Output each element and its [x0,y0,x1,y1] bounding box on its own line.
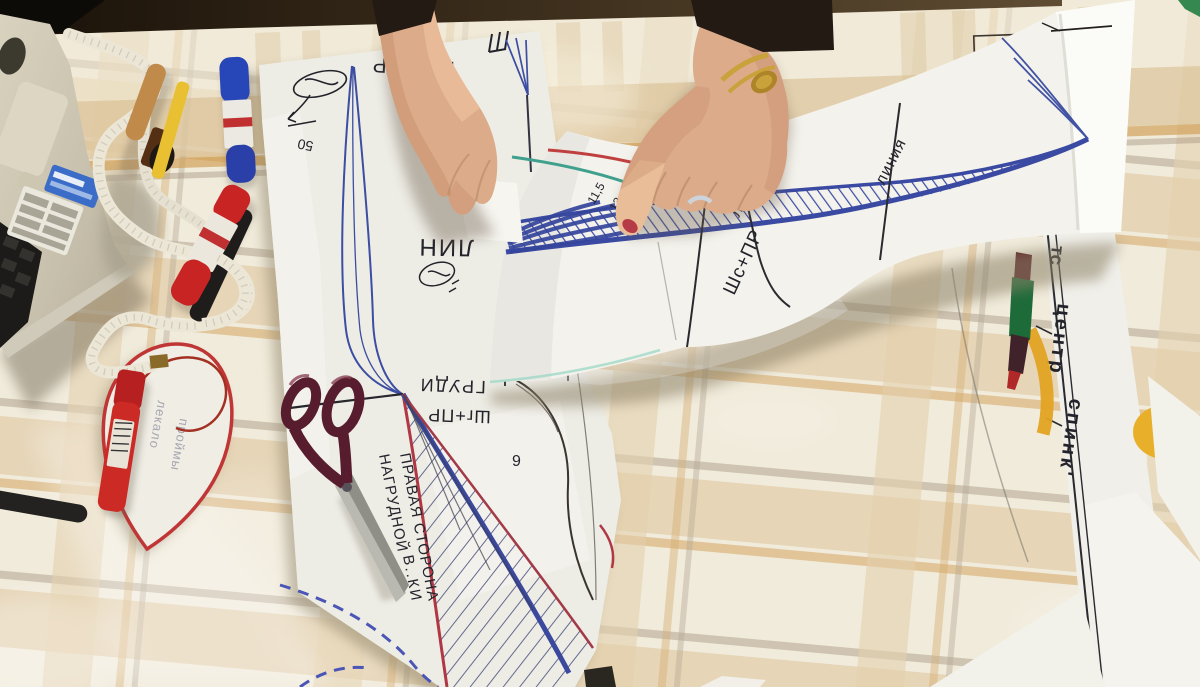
svg-text:Шг+ПР: Шг+ПР [427,405,491,427]
svg-text:ГРУДИ: ГРУДИ [418,375,486,397]
svg-text:9: 9 [512,453,521,470]
